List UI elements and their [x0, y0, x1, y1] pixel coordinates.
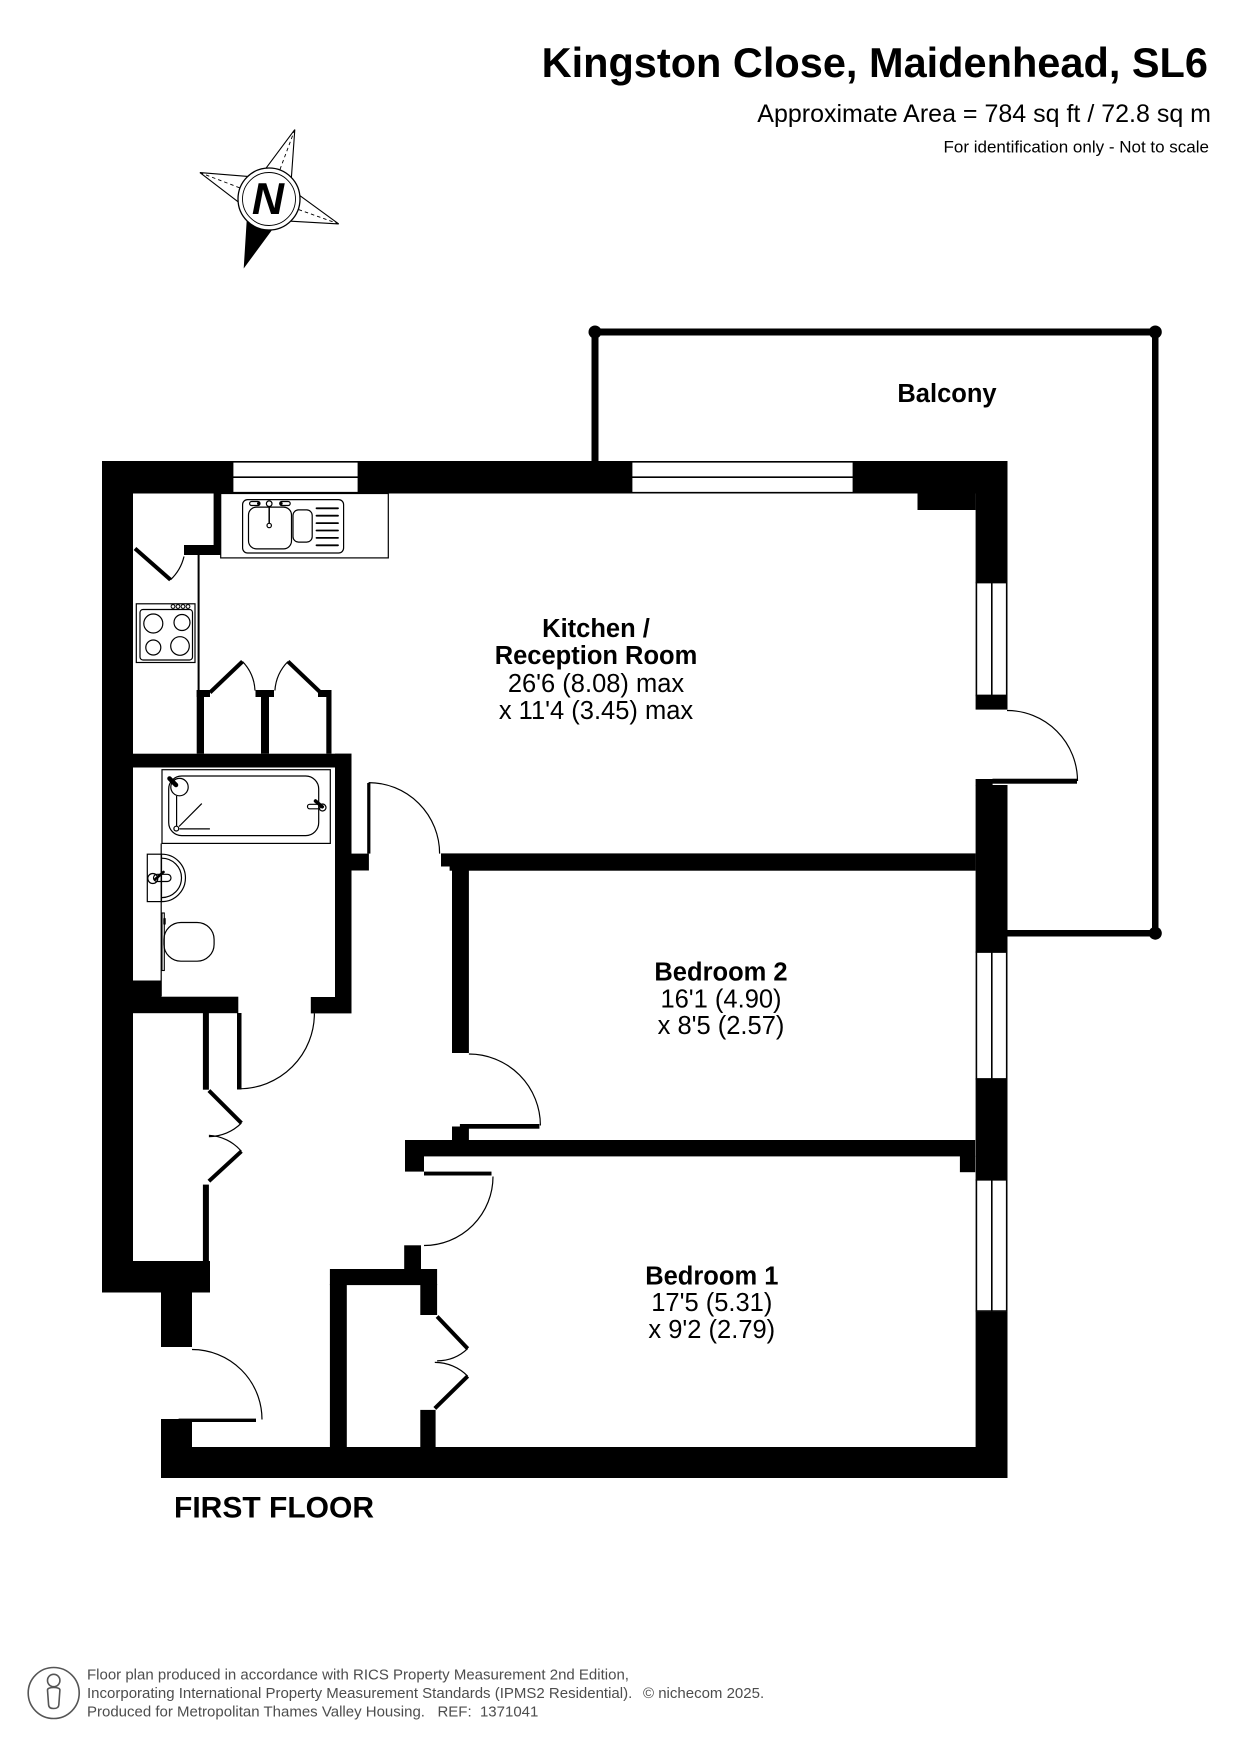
svg-text:x 8'5 (2.57): x 8'5 (2.57)	[658, 1012, 785, 1040]
svg-text:Incorporating International Pr: Incorporating International Property Mea…	[87, 1685, 632, 1702]
svg-text:x 9'2 (2.79): x 9'2 (2.79)	[648, 1316, 775, 1344]
svg-text:FIRST FLOOR: FIRST FLOOR	[174, 1492, 374, 1525]
svg-text:Floor plan produced in accorda: Floor plan produced in accordance with R…	[87, 1667, 629, 1684]
svg-text:Bedroom 1: Bedroom 1	[645, 1262, 778, 1290]
svg-text:Reception Room: Reception Room	[495, 642, 698, 670]
svg-text:17'5 (5.31): 17'5 (5.31)	[651, 1289, 772, 1317]
svg-text:N: N	[252, 175, 285, 224]
svg-text:For identification only - Not: For identification only - Not to scale	[943, 138, 1209, 157]
svg-text:© nichecom 2025.: © nichecom 2025.	[643, 1685, 764, 1702]
svg-text:x 11'4 (3.45) max: x 11'4 (3.45) max	[499, 697, 694, 725]
svg-text:Kingston Close, Maidenhead, SL: Kingston Close, Maidenhead, SL6	[542, 39, 1208, 86]
svg-text:16'1 (4.90): 16'1 (4.90)	[660, 985, 781, 1013]
svg-text:Approximate Area = 784 sq ft /: Approximate Area = 784 sq ft / 72.8 sq m	[757, 100, 1211, 128]
svg-text:26'6 (8.08) max: 26'6 (8.08) max	[508, 670, 685, 698]
svg-text:Produced for Metropolitan Tham: Produced for Metropolitan Thames Valley …	[87, 1704, 538, 1721]
svg-text:Bedroom 2: Bedroom 2	[654, 959, 787, 987]
svg-text:Balcony: Balcony	[897, 380, 997, 408]
svg-text:Kitchen /: Kitchen /	[542, 615, 650, 643]
